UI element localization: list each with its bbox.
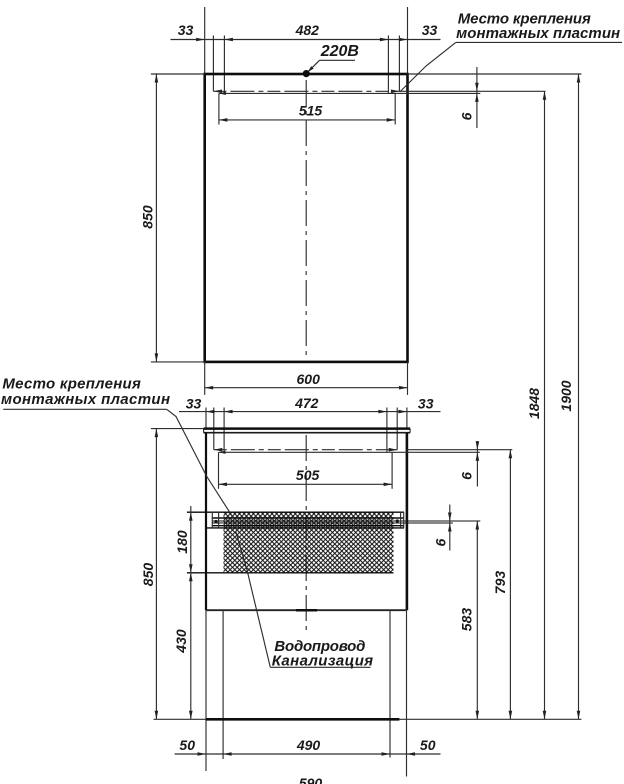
svg-text:583: 583 xyxy=(459,608,475,632)
svg-text:482: 482 xyxy=(295,22,320,38)
svg-text:1900: 1900 xyxy=(558,380,574,411)
svg-text:6: 6 xyxy=(459,472,475,480)
svg-text:33: 33 xyxy=(186,396,202,412)
svg-text:33: 33 xyxy=(418,396,434,412)
svg-text:850: 850 xyxy=(140,205,156,229)
svg-text:монтажных пластин: монтажных пластин xyxy=(456,25,620,42)
svg-text:430: 430 xyxy=(173,629,189,654)
svg-text:505: 505 xyxy=(296,467,320,483)
svg-text:850: 850 xyxy=(140,563,156,587)
svg-text:600: 600 xyxy=(297,371,321,387)
svg-text:Канализация: Канализация xyxy=(272,652,373,669)
svg-text:33: 33 xyxy=(178,22,194,38)
svg-text:515: 515 xyxy=(299,103,323,119)
svg-text:793: 793 xyxy=(492,571,508,595)
svg-text:472: 472 xyxy=(294,395,319,411)
svg-text:6: 6 xyxy=(459,112,475,120)
svg-text:монтажных пластин: монтажных пластин xyxy=(1,391,170,408)
svg-text:180: 180 xyxy=(174,530,190,554)
svg-text:50: 50 xyxy=(179,737,195,753)
svg-text:590: 590 xyxy=(299,775,323,784)
svg-text:220В: 220В xyxy=(320,43,359,60)
svg-text:33: 33 xyxy=(422,22,438,38)
svg-text:6: 6 xyxy=(432,538,448,546)
svg-text:1848: 1848 xyxy=(526,388,542,419)
svg-text:490: 490 xyxy=(296,737,321,753)
svg-text:50: 50 xyxy=(420,737,436,753)
